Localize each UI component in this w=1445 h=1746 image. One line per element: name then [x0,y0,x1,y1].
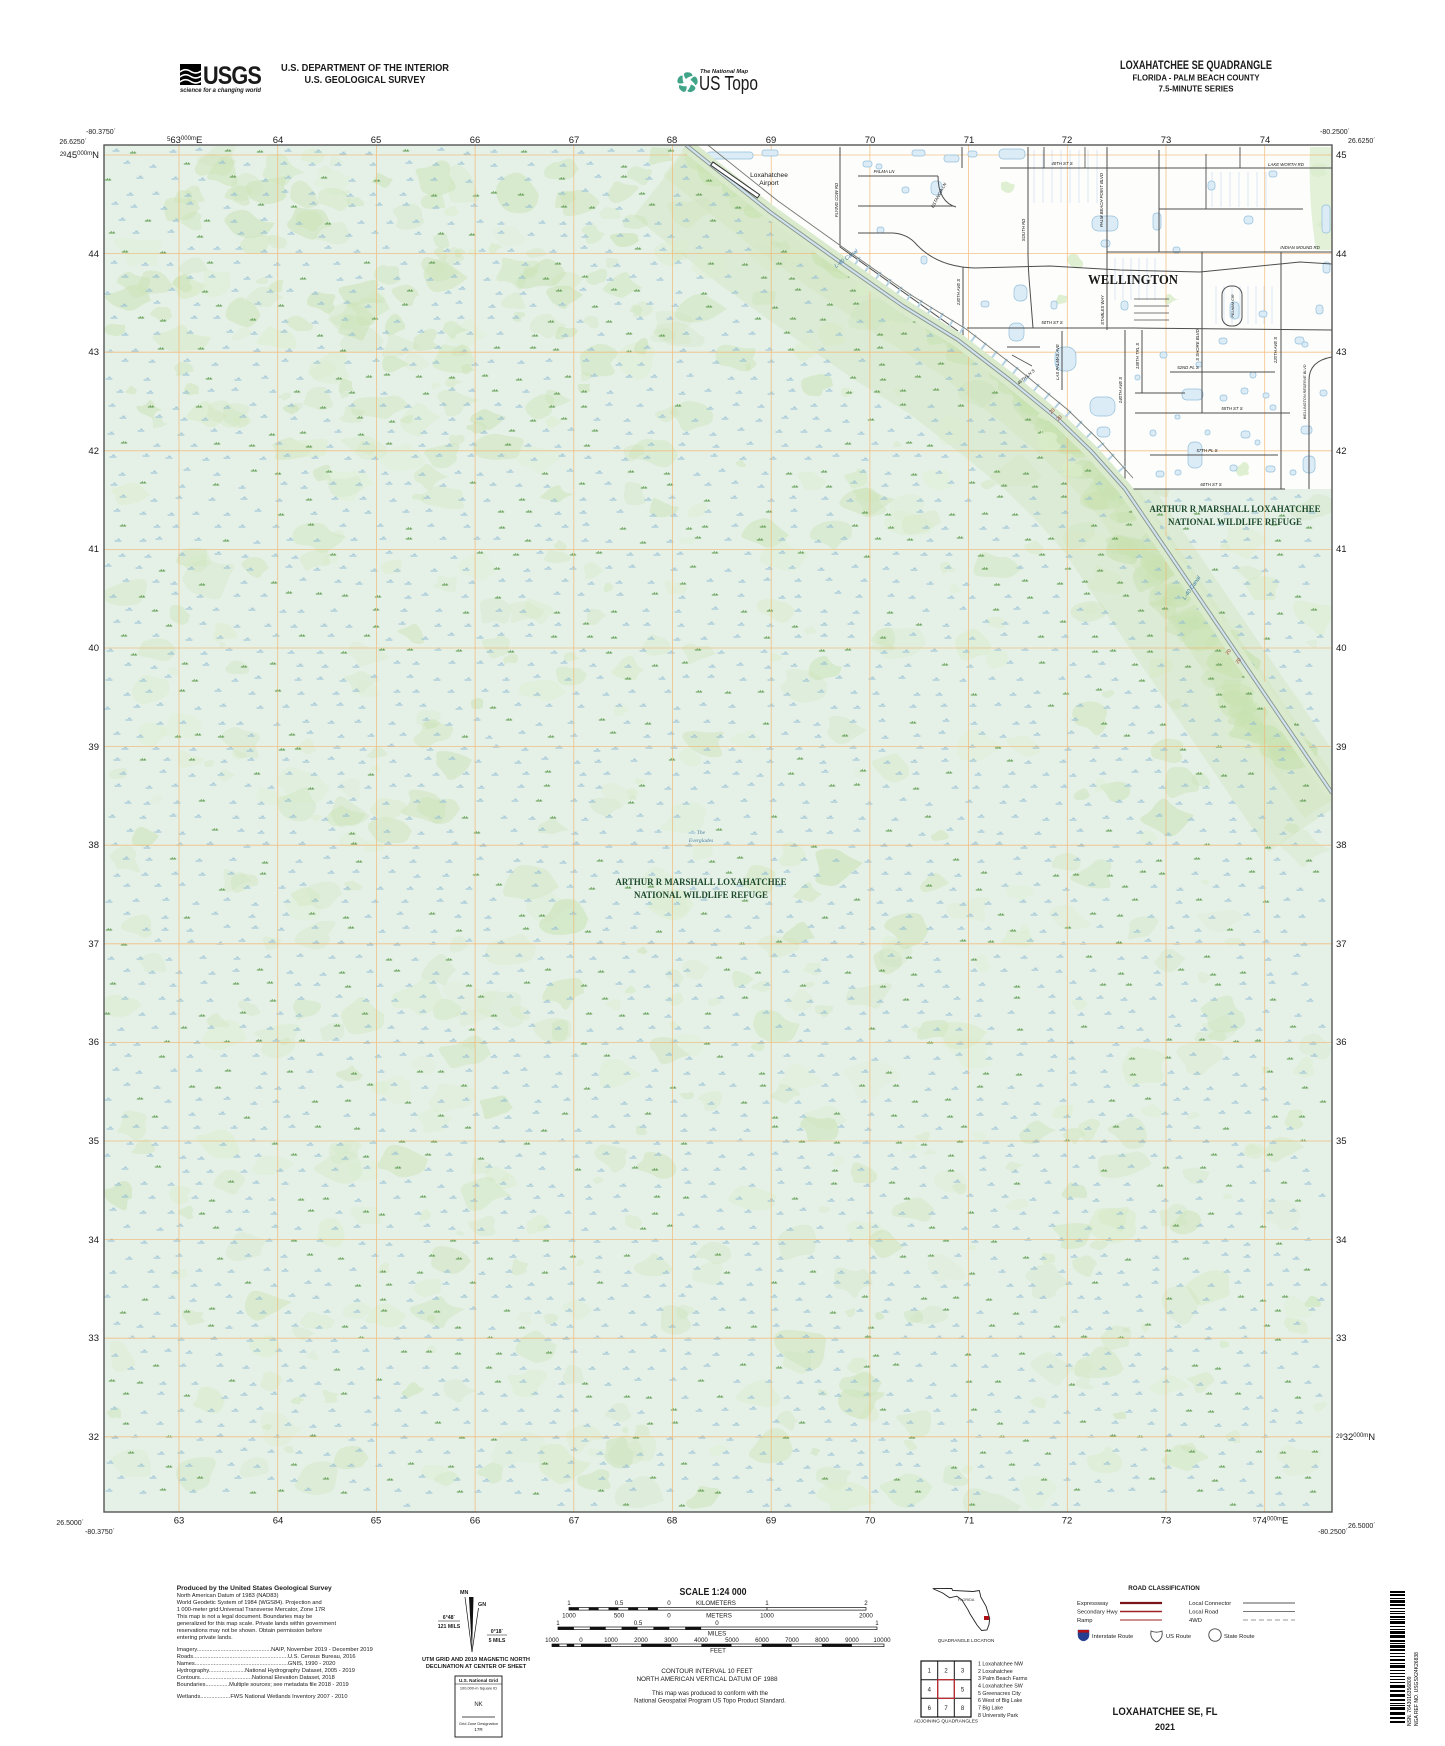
svg-text:NK: NK [474,1702,482,1708]
svg-text:ARTHUR R MARSHALL LOXAHATCHEE: ARTHUR R MARSHALL LOXAHATCHEE [616,877,787,887]
svg-text:26.5000´: 26.5000´ [56,1520,84,1527]
svg-text:2: 2 [864,1600,868,1607]
svg-text:1000: 1000 [545,1637,559,1644]
svg-text:37: 37 [1336,939,1347,950]
svg-text:1: 1 [875,1620,879,1627]
svg-text:3 Palm Beach Farms: 3 Palm Beach Farms [978,1676,1028,1682]
svg-text:130TH AVE S: 130TH AVE S [956,279,961,305]
svg-text:DECLINATION AT CENTER OF SHEET: DECLINATION AT CENTER OF SHEET [426,1664,527,1670]
svg-text:52ND PL S: 52ND PL S [1177,365,1199,370]
svg-text:PALMA LN: PALMA LN [874,169,896,174]
svg-text:6°48´: 6°48´ [443,1615,456,1621]
svg-text:MILES: MILES [708,1631,727,1638]
svg-text:NATIONAL WILDLIFE REFUGE: NATIONAL WILDLIFE REFUGE [1168,517,1302,527]
svg-text:NORTH AMERICAN VERTICAL DATUM: NORTH AMERICAN VERTICAL DATUM OF 1988 [636,1676,778,1683]
svg-text:39: 39 [88,742,99,753]
svg-text:NATIONAL WILDLIFE REFUGE: NATIONAL WILDLIFE REFUGE [634,890,768,900]
svg-text:1: 1 [556,1620,560,1627]
svg-text:Roads.........................: Roads...................................… [177,1654,356,1660]
svg-text:3000: 3000 [664,1637,678,1644]
svg-text:-80.3750´: -80.3750´ [86,129,116,136]
svg-text:10000: 10000 [873,1637,891,1644]
svg-text:-80.3750´: -80.3750´ [85,1529,115,1536]
svg-text:33: 33 [88,1333,99,1344]
svg-text:SOUTH RD: SOUTH RD [1021,219,1026,241]
svg-text:Loxahatchee: Loxahatchee [750,172,788,179]
svg-text:FLORIDA - PALM BEACH COUNTY: FLORIDA - PALM BEACH COUNTY [1133,74,1260,83]
svg-text:ADJOINING QUADRANGLES: ADJOINING QUADRANGLES [914,1719,978,1725]
svg-text:1000: 1000 [760,1613,774,1620]
svg-text:71: 71 [964,1516,975,1527]
svg-text:72: 72 [1062,135,1073,146]
svg-text:2021: 2021 [1155,1722,1175,1732]
svg-text:This map was produced to confo: This map was produced to conform with th… [652,1691,769,1697]
svg-text:WELLINGTON: WELLINGTON [1088,273,1178,288]
svg-text:35: 35 [88,1136,99,1147]
svg-text:LOXAHATCHEE SE, FL: LOXAHATCHEE SE, FL [1113,1706,1218,1718]
svg-text:63: 63 [174,1516,185,1527]
svg-text:Imagery.......................: Imagery.................................… [177,1647,373,1653]
svg-text:GN: GN [478,1602,486,1608]
svg-text:73: 73 [1161,135,1172,146]
svg-text:generalized for this map scale: generalized for this map scale. Private … [177,1621,337,1627]
svg-text:73: 73 [1161,1516,1172,1527]
svg-text:43: 43 [1336,347,1347,358]
svg-text:0: 0 [667,1600,671,1607]
svg-text:66: 66 [470,1516,481,1527]
svg-text:2000: 2000 [859,1613,873,1620]
svg-text:FEET: FEET [710,1648,726,1655]
svg-text:-80.2500´: -80.2500´ [1320,129,1350,136]
svg-text:36: 36 [88,1037,99,1048]
svg-text:Local Road: Local Road [1189,1610,1218,1616]
svg-text:32: 32 [88,1432,99,1443]
svg-text:68: 68 [667,1516,678,1527]
svg-text:Produced by the United States: Produced by the United States Geological… [177,1585,332,1592]
svg-text:U.S. National Grid: U.S. National Grid [459,1678,498,1683]
svg-text:121 MILS: 121 MILS [438,1624,461,1630]
svg-text:45: 45 [1336,150,1347,161]
svg-text:1: 1 [765,1600,769,1607]
svg-text:138TH TRL S: 138TH TRL S [1135,343,1140,369]
svg-text:entering private lands.: entering private lands. [177,1635,233,1641]
svg-text:The: The [697,830,706,836]
svg-text:36: 36 [1336,1037,1347,1048]
svg-text:64: 64 [273,1516,284,1527]
svg-text:65: 65 [371,1516,382,1527]
svg-text:44: 44 [88,249,99,260]
svg-text:5 Greenacres City: 5 Greenacres City [978,1691,1021,1697]
svg-text:NGA REF NO. USGSX24K26838: NGA REF NO. USGSX24K26838 [1414,1652,1420,1726]
svg-text:72: 72 [1062,1516,1073,1527]
svg-text:National Geospatial Program US: National Geospatial Program US Topo Prod… [634,1699,786,1705]
svg-text:67: 67 [569,135,580,146]
svg-text:26.6250´: 26.6250´ [59,139,87,146]
svg-text:KILOMETERS: KILOMETERS [696,1600,736,1607]
svg-text:QUADRANGLE LOCATION: QUADRANGLE LOCATION [938,1638,995,1643]
svg-text:SCALE 1:24 000: SCALE 1:24 000 [680,1587,747,1598]
svg-text:1 000-meter grid:Universal Tra: 1 000-meter grid:Universal Transverse Me… [177,1607,326,1613]
svg-text:40TH ST S: 40TH ST S [1051,161,1072,166]
svg-text:0: 0 [579,1637,583,1644]
svg-text:0.5: 0.5 [634,1620,643,1627]
svg-text:US Route: US Route [1166,1634,1191,1640]
svg-text:70: 70 [865,135,876,146]
svg-text:2 Loxahatchee: 2 Loxahatchee [978,1669,1013,1675]
svg-text:USGS: USGS [203,62,261,90]
svg-text:science for a changing world: science for a changing world [180,87,262,94]
svg-text:43: 43 [88,347,99,358]
svg-text:4 Loxahatchee SW: 4 Loxahatchee SW [978,1684,1023,1690]
svg-text:LAS PALMAS AVE: LAS PALMAS AVE [1055,344,1060,380]
svg-text:0°18´: 0°18´ [491,1629,504,1635]
svg-text:38: 38 [88,840,99,851]
svg-text:41: 41 [1336,544,1347,555]
svg-text:68: 68 [667,135,678,146]
svg-text:38: 38 [1336,840,1347,851]
svg-text:64: 64 [273,135,284,146]
svg-text:40: 40 [1336,643,1347,654]
svg-text:8000: 8000 [815,1637,829,1644]
svg-text:39: 39 [1336,742,1347,753]
svg-text:Expressway: Expressway [1077,1601,1108,1607]
svg-text:STABLES WAY: STABLES WAY [1100,294,1105,325]
svg-text:4000: 4000 [694,1637,708,1644]
svg-text:Interstate Route: Interstate Route [1092,1634,1133,1640]
svg-text:This map is not a legal docume: This map is not a legal document. Bounda… [177,1614,313,1620]
svg-text:Boundaries...............Multi: Boundaries...............Multiple source… [177,1682,349,1688]
svg-text:Wetlands...................FWS: Wetlands...................FWS National … [177,1694,348,1700]
svg-text:71: 71 [964,135,975,146]
svg-text:Ramp: Ramp [1077,1618,1092,1624]
svg-text:Local Connector: Local Connector [1189,1601,1231,1607]
svg-text:ARTHUR R MARSHALL LOXAHATCHEE: ARTHUR R MARSHALL LOXAHATCHEE [1150,504,1321,514]
svg-text:1: 1 [567,1600,571,1607]
svg-text:Everglades: Everglades [688,838,714,844]
svg-text:55TH ST S: 55TH ST S [1221,406,1242,411]
svg-text:6 West of Big Lake: 6 West of Big Lake [978,1698,1022,1704]
svg-text:42: 42 [1336,446,1347,457]
svg-text:2000: 2000 [634,1637,648,1644]
svg-text:65: 65 [371,135,382,146]
svg-text:INDIAN MOUND RD: INDIAN MOUND RD [1280,245,1319,250]
svg-text:Airport: Airport [759,180,779,187]
svg-text:1 Loxahatchee NW: 1 Loxahatchee NW [978,1662,1023,1668]
svg-text:NSN. 7643016356809: NSN. 7643016356809 [1407,1676,1413,1726]
svg-text:500: 500 [614,1613,625,1620]
svg-text:0: 0 [715,1620,719,1627]
svg-text:34: 34 [88,1235,99,1246]
svg-text:5000: 5000 [725,1637,739,1644]
svg-text:8 University Park: 8 University Park [978,1713,1018,1719]
svg-text:METERS: METERS [706,1613,732,1620]
svg-text:7000: 7000 [785,1637,799,1644]
svg-text:70: 70 [865,1516,876,1527]
svg-text:WELLINGTON RESERVE BLVD: WELLINGTON RESERVE BLVD [1303,364,1307,419]
svg-text:67: 67 [569,1516,580,1527]
svg-text:69: 69 [766,1516,777,1527]
svg-text:26.5000´: 26.5000´ [1348,1523,1376,1530]
svg-text:41: 41 [88,544,99,555]
svg-text:North American Datum of 1983 (: North American Datum of 1983 (NAD83) [177,1593,279,1599]
svg-text:ROAD CLASSIFICATION: ROAD CLASSIFICATION [1128,1585,1200,1592]
svg-text:37: 37 [88,939,99,950]
svg-text:Secondary Hwy: Secondary Hwy [1077,1610,1118,1616]
svg-text:FLYING COW RD: FLYING COW RD [834,183,839,217]
svg-text:26.6250´: 26.6250´ [1348,138,1376,145]
svg-text:140TH AVE S: 140TH AVE S [1118,377,1123,403]
svg-text:34: 34 [1336,1235,1347,1246]
svg-text:S SHORE BLVD: S SHORE BLVD [1195,329,1200,361]
svg-text:Contours......................: Contours................................… [177,1675,335,1681]
svg-text:0.5: 0.5 [615,1600,624,1607]
svg-text:UTM GRID AND 2019 MAGNETIC NOR: UTM GRID AND 2019 MAGNETIC NORTH [422,1657,530,1663]
svg-text:1000: 1000 [604,1637,618,1644]
svg-text:LAKE WORTH RD: LAKE WORTH RD [1268,162,1304,167]
svg-text:CONTOUR INTERVAL 10 FEET: CONTOUR INTERVAL 10 FEET [661,1668,752,1675]
svg-text:6000: 6000 [755,1637,769,1644]
svg-text:69: 69 [766,135,777,146]
svg-text:5 MILS: 5 MILS [489,1638,506,1644]
svg-text:PELHAM CIR: PELHAM CIR [1231,294,1235,317]
svg-text:U.S. DEPARTMENT OF THE INTERIO: U.S. DEPARTMENT OF THE INTERIOR [281,63,450,74]
svg-text:120TH AVE S: 120TH AVE S [1273,337,1278,363]
svg-text:57TH PL S: 57TH PL S [1197,448,1218,453]
svg-text:66: 66 [470,135,481,146]
svg-text:U.S. GEOLOGICAL SURVEY: U.S. GEOLOGICAL SURVEY [305,75,426,86]
svg-text:40: 40 [88,643,99,654]
svg-text:7 Big Lake: 7 Big Lake [978,1706,1003,1712]
svg-text:Names.........................: Names...................................… [177,1661,336,1667]
svg-text:MN: MN [460,1590,468,1596]
svg-text:60TH ST S: 60TH ST S [1200,482,1221,487]
svg-text:0: 0 [667,1613,671,1620]
svg-text:Grid Zone Designation: Grid Zone Designation [459,1721,498,1726]
svg-text:9000: 9000 [845,1637,859,1644]
svg-text:1000: 1000 [562,1613,576,1620]
svg-text:US Topo: US Topo [699,73,758,95]
svg-text:World Geodetic System of 1984: World Geodetic System of 1984 (WGS84). P… [177,1600,322,1606]
svg-text:33: 33 [1336,1333,1347,1344]
svg-text:LOXAHATCHEE SE QUADRANGLE: LOXAHATCHEE SE QUADRANGLE [1120,60,1272,72]
svg-text:74: 74 [1260,135,1271,146]
svg-text:PALM BEACH POINT BLVD: PALM BEACH POINT BLVD [1099,173,1104,227]
svg-text:42: 42 [88,446,99,457]
svg-text:17R: 17R [474,1727,483,1732]
svg-text:44: 44 [1336,249,1347,260]
svg-text:FLORIDA: FLORIDA [958,1598,975,1602]
svg-text:35: 35 [1336,1136,1347,1147]
svg-text:50TH ST S: 50TH ST S [1041,320,1062,325]
svg-text:100,000-m Square ID: 100,000-m Square ID [460,1686,497,1691]
svg-text:State Route: State Route [1224,1634,1255,1640]
svg-text:-80.2500´: -80.2500´ [1318,1529,1348,1536]
svg-text:4WD: 4WD [1189,1618,1202,1624]
svg-text:reservations may not be shown.: reservations may not be shown. Obtain pe… [177,1628,322,1634]
svg-text:Hydrography...................: Hydrography.......................Nation… [177,1668,355,1674]
svg-text:7.5-MINUTE SERIES: 7.5-MINUTE SERIES [1159,85,1235,94]
